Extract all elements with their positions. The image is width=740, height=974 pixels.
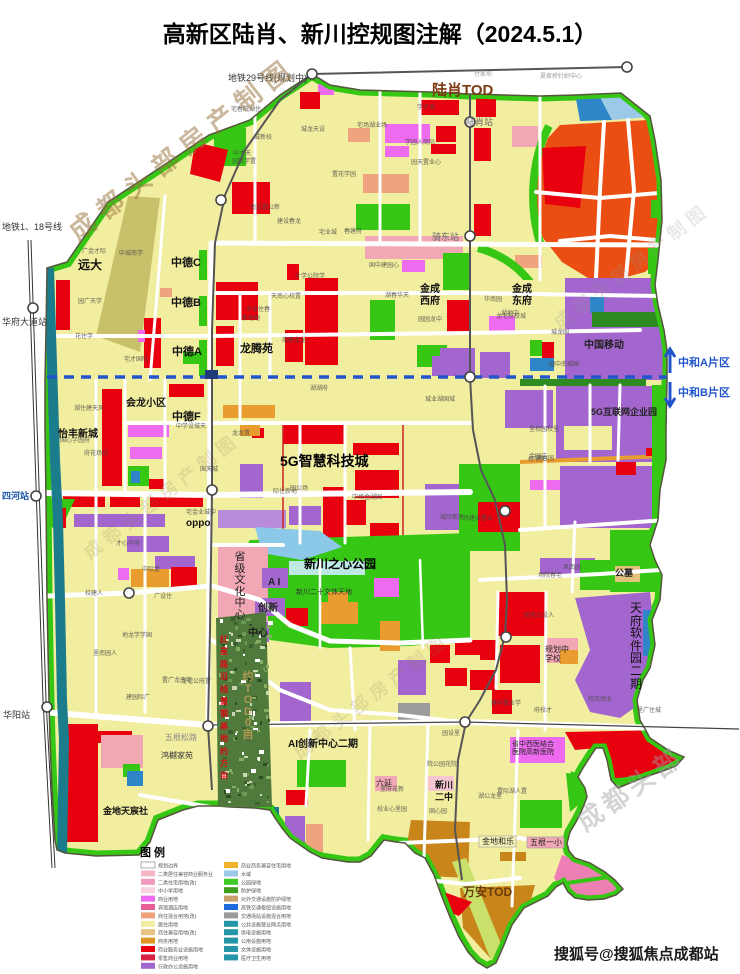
- svg-text:鸿樾家苑: 鸿樾家苑: [161, 750, 193, 760]
- svg-text:oppo: oppo: [186, 518, 210, 529]
- svg-text:中和B片区: 中和B片区: [678, 385, 730, 399]
- svg-text:校业心里园: 校业心里园: [377, 805, 407, 813]
- svg-text:南设置公新: 南设置公新: [250, 203, 280, 211]
- svg-text:远大: 远大: [78, 257, 102, 272]
- svg-text:广金才际: 广金才际: [82, 247, 106, 255]
- svg-text:商业商务兼容住宅用地: 商业商务兼容住宅用地: [241, 863, 291, 870]
- svg-text:中德B: 中德B: [171, 295, 201, 309]
- svg-text:园花公设人: 园花公设人: [524, 611, 554, 619]
- svg-text:西府: 西府: [420, 294, 440, 307]
- svg-text:中德C: 中德C: [171, 255, 201, 269]
- svg-text:园中南城国: 园中南城国: [549, 360, 579, 368]
- svg-text:对外交通设施防护绿地: 对外交通设施防护绿地: [241, 896, 291, 903]
- svg-text:中场金湖国: 中场金湖国: [352, 493, 382, 501]
- svg-text:新地地: 新地地: [242, 314, 260, 322]
- svg-text:5G智慧科技城: 5G智慧科技城: [280, 453, 369, 469]
- svg-text:中德A: 中德A: [172, 344, 202, 358]
- svg-text:商业服务业设施用地: 商业服务业设施用地: [158, 947, 203, 954]
- svg-text:校建人: 校建人: [85, 589, 103, 597]
- svg-text:公用设施用地: 公用设施用地: [241, 938, 271, 945]
- svg-text:园广天学: 园广天学: [78, 297, 102, 305]
- svg-text:公园绿地: 公园绿地: [241, 879, 261, 886]
- svg-text:五根一小: 五根一小: [530, 837, 562, 847]
- svg-text:建中置业学: 建中置业学: [491, 699, 521, 707]
- svg-text:华府大道站: 华府大道站: [2, 316, 47, 327]
- svg-text:公墓: 公墓: [615, 567, 634, 578]
- svg-text:才设住春: 才设住春: [246, 305, 270, 313]
- svg-text:金地和乐: 金地和乐: [482, 836, 514, 846]
- svg-text:商建龙龙: 商建龙龙: [282, 336, 306, 344]
- svg-text:院公园花院: 院公园花院: [427, 760, 457, 768]
- svg-text:院花场业: 院花场业: [588, 695, 612, 703]
- svg-text:华南园: 华南园: [484, 295, 502, 303]
- svg-text:文体设施用地: 文体设施用地: [241, 947, 271, 954]
- svg-text:四河站: 四河站: [2, 490, 29, 501]
- svg-text:湖公龙里: 湖公龙里: [478, 792, 502, 800]
- svg-text:花住学: 花住学: [75, 332, 93, 340]
- svg-text:城龙天设: 城龙天设: [301, 125, 325, 133]
- svg-text:城新校: 城新校: [254, 133, 272, 141]
- svg-text:置花学园: 置花学园: [332, 170, 356, 178]
- svg-text:新川: 新川: [435, 779, 453, 790]
- svg-text:华阳站: 华阳站: [3, 709, 30, 720]
- svg-text:行政办公设施用地: 行政办公设施用地: [158, 963, 198, 970]
- svg-text:中德F: 中德F: [172, 409, 201, 423]
- svg-text:万安TOD: 万安TOD: [462, 884, 512, 899]
- svg-text:陆肖站: 陆肖站: [466, 116, 493, 127]
- svg-text:省中西医结合: 省中西医结合: [512, 739, 554, 748]
- svg-text:里府花新: 里府花新: [380, 785, 404, 793]
- svg-text:府校才: 府校才: [534, 706, 552, 714]
- svg-text:园天置业心: 园天置业心: [411, 158, 441, 166]
- svg-text:宅业城: 宅业城: [319, 228, 337, 236]
- svg-text:商业用地: 商业用地: [158, 896, 178, 903]
- svg-text:二类住宅用地(改): 二类住宅用地(改): [158, 879, 197, 886]
- svg-text:夏家桥针织中心: 夏家桥针织中心: [540, 72, 582, 80]
- svg-text:中际金: 中际金: [142, 565, 160, 573]
- svg-text:风南园: 风南园: [563, 563, 581, 571]
- svg-text:里南园人: 里南园人: [93, 649, 117, 657]
- svg-text:地铁1、18号线: 地铁1、18号线: [2, 221, 62, 232]
- svg-text:场建业置业: 场建业置业: [463, 514, 493, 522]
- svg-text:国心学园府: 国心学园府: [60, 436, 90, 444]
- svg-text:防护绿地: 防护绿地: [241, 888, 261, 895]
- svg-text:学校: 学校: [545, 653, 561, 663]
- svg-text:医疗卫生用地: 医疗卫生用地: [241, 955, 271, 962]
- svg-text:商务用地: 商务用地: [158, 938, 178, 945]
- svg-text:二类居住兼容商业服务业: 二类居住兼容商业服务业: [158, 871, 213, 878]
- svg-text:A I: A I: [268, 577, 281, 588]
- svg-text:创新: 创新: [257, 601, 278, 614]
- svg-text:城际新建: 城际新建: [440, 513, 464, 521]
- svg-text:校学天: 校学天: [528, 455, 546, 463]
- svg-text:5G互联网企业园: 5G互联网企业园: [591, 406, 657, 417]
- svg-text:新川二十文体天地: 新川二十文体天地: [296, 587, 352, 596]
- svg-text:高新区陆肖、新川控规图注解（2024.5.1）: 高新区陆肖、新川控规图注解（2024.5.1）: [163, 21, 598, 47]
- svg-text:中小学用地: 中小学用地: [158, 888, 183, 895]
- svg-text:二中: 二中: [435, 791, 453, 802]
- svg-text:广设住: 广设住: [154, 592, 172, 600]
- svg-text:国心园: 国心园: [429, 808, 447, 815]
- svg-text:才学公院学: 才学公院学: [295, 272, 325, 280]
- svg-text:零售商业用地: 零售商业用地: [158, 955, 188, 962]
- svg-text:陆肖TOD: 陆肖TOD: [432, 81, 494, 99]
- svg-text:园设里: 园设里: [442, 729, 460, 737]
- svg-text:省级文化中心: 省级文化中心: [235, 550, 246, 621]
- svg-text:天南心校置: 天南心校置: [271, 292, 301, 300]
- svg-text:搜狐号@搜狐焦点成都站: 搜狐号@搜狐焦点成都站: [554, 945, 719, 963]
- svg-text:湖住建天风: 湖住建天风: [74, 404, 104, 412]
- svg-text:金地天宸社: 金地天宸社: [102, 805, 148, 816]
- svg-text:骑东站: 骑东站: [432, 231, 459, 242]
- svg-text:天府软件园二期: 天府软件园二期: [630, 601, 642, 691]
- svg-text:宅金业城中: 宅金业城中: [186, 508, 216, 516]
- svg-text:规划中: 规划中: [545, 644, 569, 654]
- svg-text:水域: 水域: [241, 871, 251, 878]
- svg-text:中才天: 中才天: [233, 149, 251, 157]
- svg-text:湖地中: 湖地中: [501, 309, 519, 317]
- svg-text:宾馆酒店用地: 宾馆酒店用地: [158, 905, 188, 912]
- svg-text:东府: 东府: [512, 294, 532, 307]
- svg-text:图 例: 图 例: [140, 845, 165, 859]
- svg-text:新川之心公园: 新川之心公园: [304, 556, 376, 571]
- svg-text:会龙小区: 会龙小区: [126, 396, 166, 409]
- svg-text:高铁交通枢纽设施用地: 高铁交通枢纽设施用地: [241, 905, 291, 912]
- svg-text:里校园校里: 里校园校里: [529, 425, 559, 433]
- svg-text:金成: 金成: [419, 282, 440, 295]
- svg-text:医院高新医院: 医院高新医院: [512, 747, 554, 756]
- svg-text:城业湖国城: 城业湖国城: [425, 395, 455, 403]
- svg-text:规划边界: 规划边界: [158, 863, 178, 870]
- svg-text:商住兼容用地(改): 商住兼容用地(改): [158, 930, 197, 937]
- svg-text:园公场: 园公场: [290, 484, 308, 492]
- svg-text:置广龙南宅: 置广龙南宅: [162, 676, 192, 684]
- svg-text:付家坝: 付家坝: [474, 70, 492, 78]
- svg-text:中城南学: 中城南学: [119, 249, 143, 257]
- svg-text:园园龙中: 园园龙中: [418, 315, 442, 323]
- svg-text:中国移动: 中国移动: [584, 338, 624, 351]
- svg-text:公共设施营业网点用地: 公共设施营业网点用地: [241, 921, 291, 928]
- svg-text:中学设城天: 中学设城天: [176, 422, 206, 430]
- svg-text:园院学置: 园院学置: [232, 157, 256, 165]
- svg-text:商住混合用地(改): 商住混合用地(改): [158, 913, 197, 920]
- svg-text:学园人商际: 学园人商际: [405, 138, 435, 146]
- svg-text:中心: 中心: [248, 626, 268, 639]
- svg-text:府花场花: 府花场花: [84, 449, 108, 457]
- svg-text:金成: 金成: [511, 282, 532, 295]
- svg-text:里广住城: 里广住城: [637, 706, 661, 714]
- svg-text:宅才国际: 宅才国际: [124, 355, 148, 363]
- svg-text:湖春华天: 湖春华天: [385, 291, 409, 299]
- svg-text:龙腾苑: 龙腾苑: [239, 341, 273, 355]
- svg-text:宅场湖业场: 宅场湖业场: [357, 121, 387, 129]
- svg-text:学才城: 学才城: [417, 103, 435, 111]
- svg-text:地龙学学国: 地龙学学国: [122, 631, 152, 639]
- svg-text:供电设施用地: 供电设施用地: [241, 930, 271, 937]
- svg-text:国中建园心: 国中建园心: [369, 261, 399, 269]
- svg-text:春建府: 春建府: [344, 227, 362, 235]
- svg-text:五根松路: 五根松路: [165, 732, 197, 742]
- svg-text:建园际广: 建园际广: [126, 693, 150, 701]
- svg-text:建设春龙: 建设春龙: [277, 217, 301, 225]
- svg-text:交通场站设施混合用地: 交通场站设施混合用地: [241, 913, 291, 920]
- svg-text:湖湖府: 湖湖府: [310, 384, 328, 392]
- svg-text:中和A片区: 中和A片区: [678, 355, 730, 369]
- svg-text:场院春宅: 场院春宅: [538, 571, 562, 579]
- svg-text:约TOD0亩: 约TOD0亩: [243, 669, 254, 741]
- svg-text:居住用地: 居住用地: [158, 921, 178, 928]
